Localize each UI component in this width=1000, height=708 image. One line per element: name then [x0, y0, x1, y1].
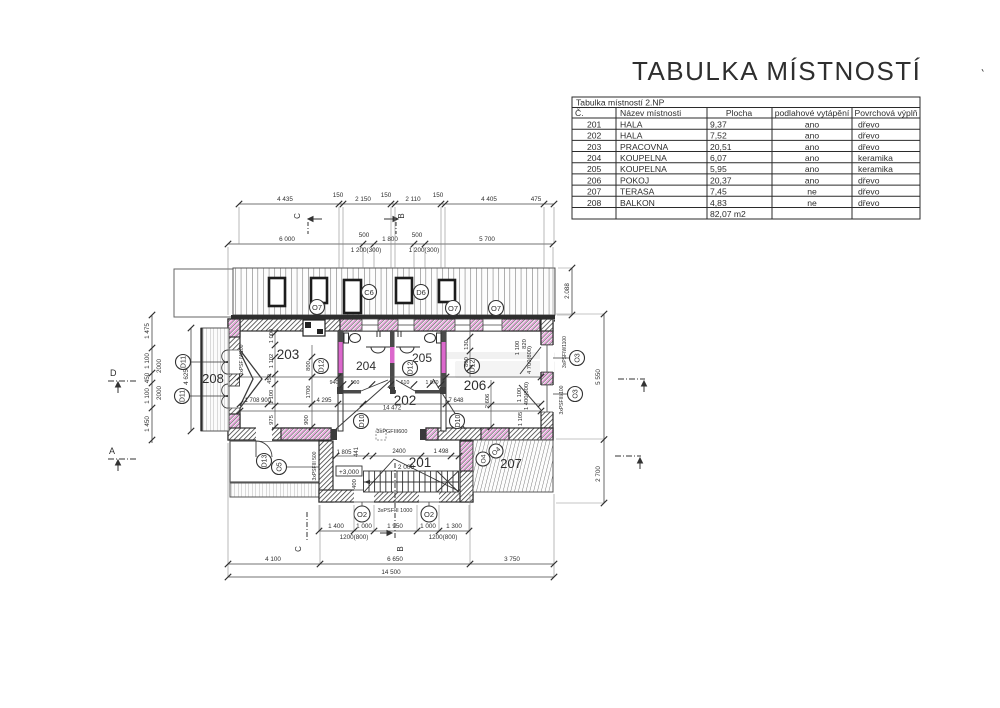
svg-text:keramika: keramika — [858, 153, 893, 163]
svg-text:1 105: 1 105 — [518, 412, 524, 427]
svg-text:D6: D6 — [416, 288, 426, 297]
svg-text:`: ` — [977, 67, 986, 83]
svg-text:204: 204 — [587, 153, 602, 163]
svg-text:O7: O7 — [312, 303, 322, 312]
svg-text:C: C — [294, 546, 303, 552]
svg-text:O7: O7 — [448, 304, 458, 313]
svg-text:204: 204 — [356, 359, 376, 373]
svg-text:BALKON: BALKON — [620, 198, 655, 208]
svg-text:+3,000: +3,000 — [339, 469, 359, 476]
svg-text:TABULKA MÍSTNOSTÍ: TABULKA MÍSTNOSTÍ — [632, 56, 921, 86]
svg-text:HALA: HALA — [620, 131, 643, 141]
svg-text:205: 205 — [587, 164, 602, 174]
svg-text:dřevo: dřevo — [858, 187, 880, 197]
svg-text:ano: ano — [805, 142, 820, 152]
svg-text:2.088: 2.088 — [564, 283, 571, 299]
svg-text:1700: 1700 — [306, 386, 312, 399]
svg-text:610: 610 — [401, 380, 410, 386]
svg-text:7 648: 7 648 — [448, 398, 464, 404]
svg-text:4 295: 4 295 — [316, 398, 332, 404]
svg-text:1 000: 1 000 — [420, 523, 436, 530]
svg-text:dřevo: dřevo — [858, 198, 880, 208]
svg-text:6 650: 6 650 — [387, 556, 403, 563]
svg-text:203: 203 — [587, 142, 602, 152]
svg-text:D11: D11 — [181, 356, 188, 368]
svg-text:7,45: 7,45 — [710, 187, 727, 197]
svg-text:150: 150 — [381, 192, 392, 199]
svg-text:O5: O5 — [277, 462, 284, 471]
svg-text:C6: C6 — [364, 288, 374, 297]
svg-text:ne: ne — [807, 187, 817, 197]
svg-text:450: 450 — [144, 372, 151, 383]
svg-text:1 100: 1 100 — [144, 353, 151, 369]
svg-text:14 472: 14 472 — [383, 406, 402, 412]
svg-text:dřevo: dřevo — [858, 119, 880, 129]
svg-text:2000: 2000 — [156, 359, 163, 374]
svg-text:1 100: 1 100 — [144, 388, 151, 404]
svg-text:940: 940 — [330, 380, 339, 386]
svg-text:208: 208 — [587, 198, 602, 208]
svg-text:1 200(300): 1 200(300) — [351, 247, 381, 254]
svg-text:PRACOVNA: PRACOVNA — [620, 142, 668, 152]
svg-text:975: 975 — [269, 415, 275, 425]
svg-text:Plocha: Plocha — [726, 108, 752, 118]
svg-text:D11: D11 — [180, 390, 187, 402]
svg-text:3xPSFIII 500: 3xPSFIII 500 — [312, 451, 318, 480]
svg-text:5,95: 5,95 — [710, 164, 727, 174]
svg-text:800: 800 — [464, 357, 470, 367]
svg-text:D10: D10 — [455, 414, 462, 427]
svg-text:3xPSFIII/100: 3xPSFIII/100 — [559, 385, 565, 414]
svg-text:dřevo: dřevo — [858, 142, 880, 152]
svg-text:9,37: 9,37 — [710, 119, 727, 129]
svg-text:1 708: 1 708 — [244, 398, 260, 404]
svg-text:podlahové vytápění: podlahové vytápění — [775, 108, 850, 118]
svg-text:O3: O3 — [575, 353, 582, 362]
svg-text:HALA: HALA — [620, 119, 643, 129]
svg-text:14 500: 14 500 — [381, 569, 401, 576]
svg-text:KOUPELNA: KOUPELNA — [620, 164, 667, 174]
svg-text:441: 441 — [354, 446, 360, 457]
svg-text:A: A — [109, 446, 115, 456]
svg-text:D10: D10 — [359, 414, 366, 427]
svg-text:D: D — [110, 368, 117, 378]
svg-text:900: 900 — [304, 415, 310, 425]
svg-text:1 300: 1 300 — [446, 523, 462, 530]
svg-text:1200(800): 1200(800) — [340, 534, 369, 541]
svg-text:KOUPELNA: KOUPELNA — [620, 153, 667, 163]
svg-text:C: C — [293, 213, 302, 219]
svg-text:1 800: 1 800 — [382, 236, 398, 243]
svg-text:900: 900 — [261, 398, 272, 404]
svg-text:3xPGFIII600: 3xPGFIII600 — [377, 429, 408, 435]
svg-text:5 700: 5 700 — [479, 236, 495, 243]
svg-text:1 100: 1 100 — [517, 388, 523, 403]
svg-text:2400: 2400 — [392, 449, 406, 455]
svg-text:O7: O7 — [491, 304, 501, 313]
svg-text:O4: O4 — [481, 454, 488, 463]
svg-text:1 498: 1 498 — [433, 449, 449, 455]
svg-text:130: 130 — [464, 340, 470, 350]
svg-text:500: 500 — [412, 232, 423, 239]
svg-text:3xPSF IW100: 3xPSF IW100 — [239, 344, 245, 375]
svg-text:keramika: keramika — [858, 164, 893, 174]
svg-text:POKOJ: POKOJ — [620, 175, 649, 185]
svg-text:206: 206 — [464, 378, 487, 393]
svg-text:6,07: 6,07 — [710, 153, 727, 163]
svg-text:4,83: 4,83 — [710, 198, 727, 208]
svg-text:TERASA: TERASA — [620, 187, 655, 197]
svg-text:203: 203 — [277, 347, 300, 362]
svg-text:7,52: 7,52 — [710, 131, 727, 141]
svg-text:400: 400 — [352, 479, 358, 489]
svg-text:207: 207 — [500, 456, 522, 471]
svg-text:Název místnosti: Název místnosti — [620, 108, 681, 118]
svg-text:dřevo: dřevo — [858, 175, 880, 185]
svg-text:1 400: 1 400 — [328, 523, 344, 530]
svg-text:1 102: 1 102 — [269, 354, 275, 369]
svg-text:D12: D12 — [470, 359, 477, 372]
svg-text:1 200(300): 1 200(300) — [409, 247, 439, 254]
svg-text:dřevo: dřevo — [858, 131, 880, 141]
svg-text:202: 202 — [587, 131, 602, 141]
svg-text:4 625: 4 625 — [183, 369, 190, 385]
svg-text:150: 150 — [433, 192, 444, 199]
svg-text:ano: ano — [805, 119, 820, 129]
svg-text:3xPSFIW1100: 3xPSFIW1100 — [562, 336, 568, 368]
svg-text:6 000: 6 000 — [279, 236, 295, 243]
svg-text:ano: ano — [805, 153, 820, 163]
svg-text:2 150: 2 150 — [355, 196, 371, 203]
svg-text:800: 800 — [306, 361, 312, 371]
svg-text:ano: ano — [805, 131, 820, 141]
svg-text:B: B — [397, 213, 406, 218]
svg-text:500: 500 — [359, 232, 370, 239]
svg-text:3 750: 3 750 — [504, 556, 520, 563]
svg-text:206: 206 — [587, 175, 602, 185]
svg-text:2 700: 2 700 — [595, 466, 602, 482]
svg-text:1 000: 1 000 — [356, 523, 372, 530]
svg-text:Povrchová výplň: Povrchová výplň — [854, 108, 917, 118]
svg-text:2 110: 2 110 — [405, 196, 421, 203]
svg-text:ano: ano — [805, 175, 820, 185]
svg-text:D12: D12 — [319, 359, 326, 372]
svg-text:4 405: 4 405 — [481, 196, 497, 203]
svg-text:2000: 2000 — [156, 386, 163, 401]
svg-text:B: B — [396, 546, 405, 551]
svg-text:O3: O3 — [573, 389, 580, 398]
svg-text:O2: O2 — [424, 510, 434, 519]
svg-text:475: 475 — [531, 196, 542, 203]
svg-text:1200(800): 1200(800) — [429, 534, 458, 541]
svg-text:208: 208 — [202, 371, 224, 386]
svg-text:5 550: 5 550 — [595, 369, 602, 385]
svg-text:1 475: 1 475 — [144, 323, 151, 339]
svg-text:Č.: Č. — [575, 108, 584, 118]
svg-text:201: 201 — [587, 119, 602, 129]
svg-text:ano: ano — [805, 164, 820, 174]
svg-text:20,51: 20,51 — [710, 142, 732, 152]
svg-text:D12: D12 — [408, 361, 415, 374]
svg-text:O2: O2 — [357, 510, 367, 519]
svg-text:1 450: 1 450 — [144, 416, 151, 432]
svg-text:D13: D13 — [262, 454, 269, 467]
svg-text:207: 207 — [587, 187, 602, 197]
svg-text:4 700(800): 4 700(800) — [527, 346, 533, 374]
svg-text:4 100: 4 100 — [265, 556, 281, 563]
svg-text:ne: ne — [807, 198, 817, 208]
svg-text:4 435: 4 435 — [277, 196, 293, 203]
svg-text:150: 150 — [333, 192, 344, 199]
svg-text:82,07 m2: 82,07 m2 — [710, 209, 746, 219]
svg-text:20,37: 20,37 — [710, 175, 732, 185]
svg-text:1 100: 1 100 — [515, 341, 521, 356]
svg-text:Tabulka místností 2.NP: Tabulka místností 2.NP — [576, 97, 665, 107]
